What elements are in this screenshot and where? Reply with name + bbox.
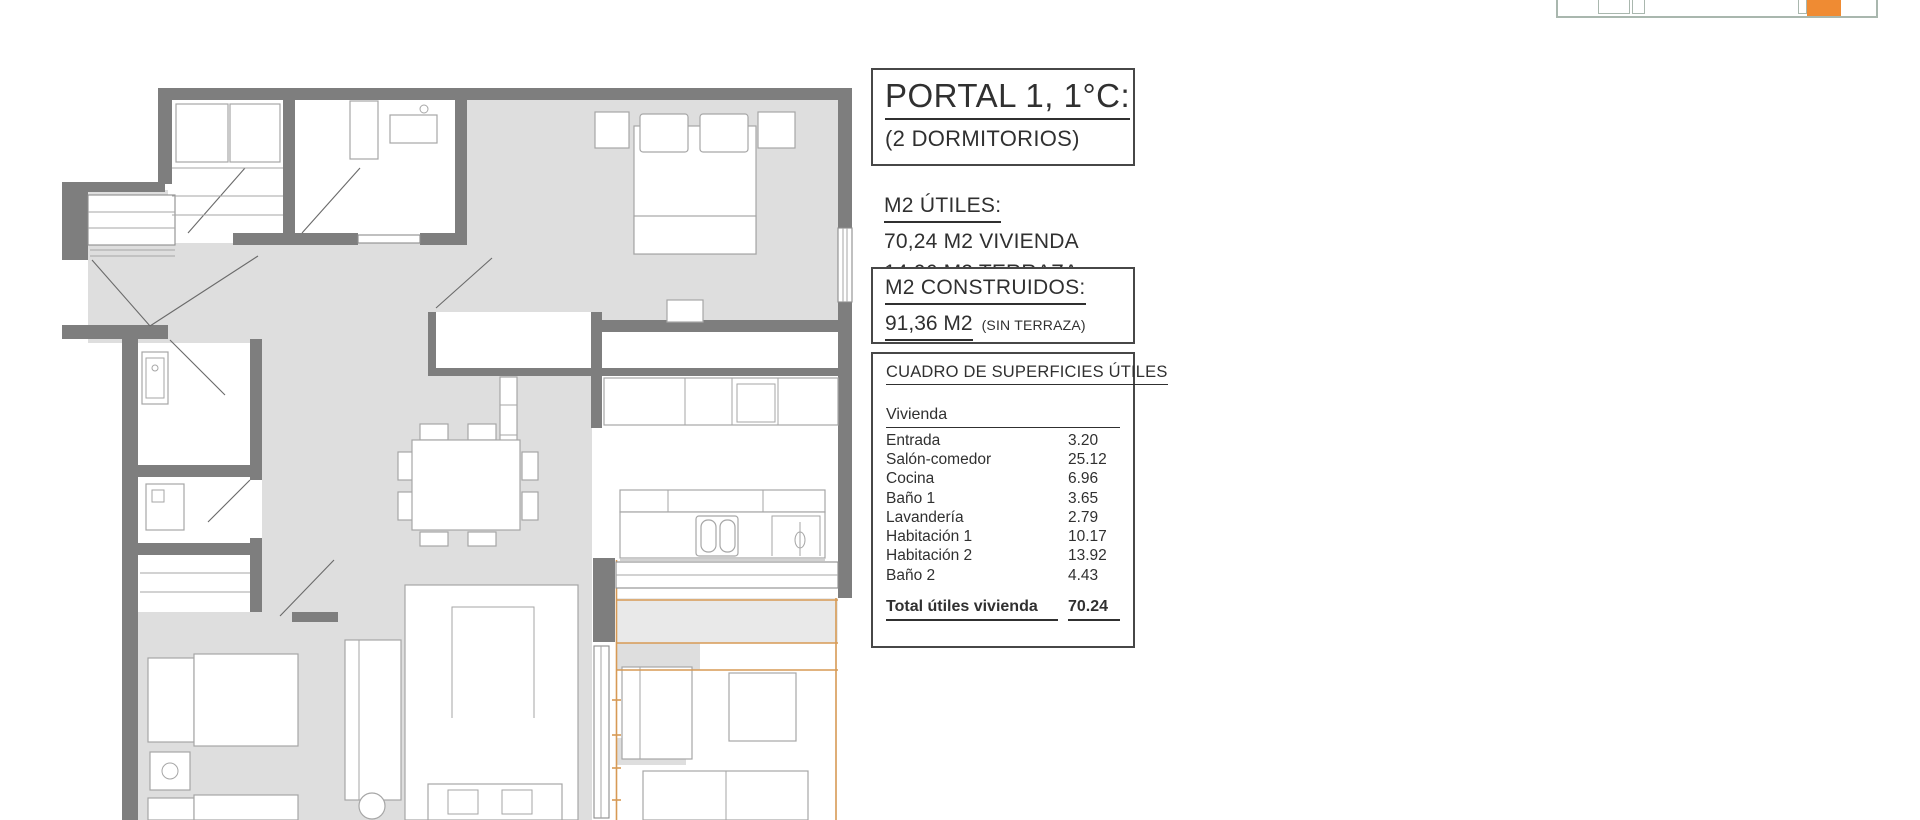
- room-name: Baño 1: [886, 490, 1068, 508]
- key-plan: [1556, 0, 1878, 18]
- table-row: Habitación 110.17: [886, 527, 1120, 546]
- m2-construidos-box: M2 CONSTRUIDOS: 91,36 M2(SIN TERRAZA): [871, 267, 1135, 344]
- kitchen-counter: [620, 490, 825, 560]
- key-plan-unit: [1632, 0, 1645, 14]
- terrace-sliding-door: [594, 646, 609, 818]
- room-name: Habitación 2: [886, 547, 1068, 565]
- bed1-pillow: [148, 658, 194, 742]
- wall-left: [122, 339, 138, 820]
- dining-set: [398, 424, 538, 546]
- room-area: 6.96: [1068, 470, 1120, 488]
- terrace-chair: [729, 673, 796, 741]
- nightstand: [150, 752, 190, 790]
- key-plan-highlighted-unit: [1807, 0, 1841, 16]
- table-row: Lavandería2.79: [886, 508, 1120, 527]
- m2-vivienda-value: 70,24 M2 VIVIENDA: [884, 230, 1144, 254]
- table-row: Baño 13.65: [886, 489, 1120, 508]
- room-area: 13.92: [1068, 547, 1120, 565]
- m2-construidos-row: 91,36 M2(SIN TERRAZA): [885, 312, 1121, 341]
- m2-construidos-value: 91,36 M2: [885, 312, 973, 341]
- pocket-door: [358, 235, 420, 243]
- dining-table: [412, 440, 520, 530]
- room-name: Lavandería: [886, 509, 1068, 527]
- m2-construidos-note: (SIN TERRAZA): [982, 317, 1086, 333]
- laundry-fixtures: [146, 484, 184, 530]
- room-name: Salón-comedor: [886, 451, 1068, 469]
- surface-table-rows: Entrada3.20Salón-comedor25.12Cocina6.96B…: [886, 431, 1120, 585]
- page-subtitle: (2 DORMITORIOS): [885, 126, 1121, 152]
- bedroom2-window: [838, 228, 852, 302]
- bed2: [194, 795, 298, 820]
- m2-construidos-heading: M2 CONSTRUIDOS:: [885, 276, 1121, 305]
- kitchen-nook: [436, 312, 591, 368]
- kitchen-cabinets: [604, 378, 838, 425]
- terrace-sofa: [622, 667, 692, 759]
- key-plan-unit: [1798, 0, 1807, 14]
- table-row: Cocina6.96: [886, 470, 1120, 489]
- portal-title-box: PORTAL 1, 1°C: (2 DORMITORIOS): [871, 68, 1135, 166]
- surface-table-box: CUADRO DE SUPERFICIES ÚTILES Vivienda En…: [871, 352, 1135, 648]
- table-total-row: Total útiles vivienda 70.24: [886, 598, 1120, 621]
- floor-plan: [60, 70, 860, 820]
- room-name: Baño 2: [886, 567, 1068, 585]
- table-row: Baño 24.43: [886, 566, 1120, 585]
- table-row: Salón-comedor25.12: [886, 450, 1120, 469]
- page-title: PORTAL 1, 1°C:: [885, 78, 1121, 120]
- room-name: Habitación 1: [886, 528, 1068, 546]
- bed2-pillow: [148, 798, 194, 820]
- table-group-header: Vivienda: [886, 406, 1120, 428]
- key-plan-unit: [1598, 0, 1630, 14]
- total-label: Total útiles vivienda: [886, 598, 1058, 621]
- room-area: 4.43: [1068, 567, 1120, 585]
- bed1: [194, 654, 298, 746]
- room-name: Cocina: [886, 470, 1068, 488]
- sofa: [345, 640, 401, 800]
- room-area: 3.65: [1068, 490, 1120, 508]
- room-area: 2.79: [1068, 509, 1120, 527]
- surface-table-heading: CUADRO DE SUPERFICIES ÚTILES: [886, 363, 1120, 385]
- total-value: 70.24: [1068, 598, 1120, 621]
- m2-utiles-heading: M2 ÚTILES:: [884, 194, 1144, 223]
- room-name: Entrada: [886, 432, 1068, 450]
- room-area: 25.12: [1068, 451, 1120, 469]
- table-row: Entrada3.20: [886, 431, 1120, 450]
- room-area: 3.20: [1068, 432, 1120, 450]
- wall-right: [838, 100, 852, 228]
- bathroom2-fixtures: [142, 352, 168, 404]
- room-area: 10.17: [1068, 528, 1120, 546]
- kitchen-terrace-window: [616, 562, 838, 588]
- wall-top: [158, 88, 852, 100]
- side-table: [359, 793, 385, 819]
- table-row: Habitación 213.92: [886, 547, 1120, 566]
